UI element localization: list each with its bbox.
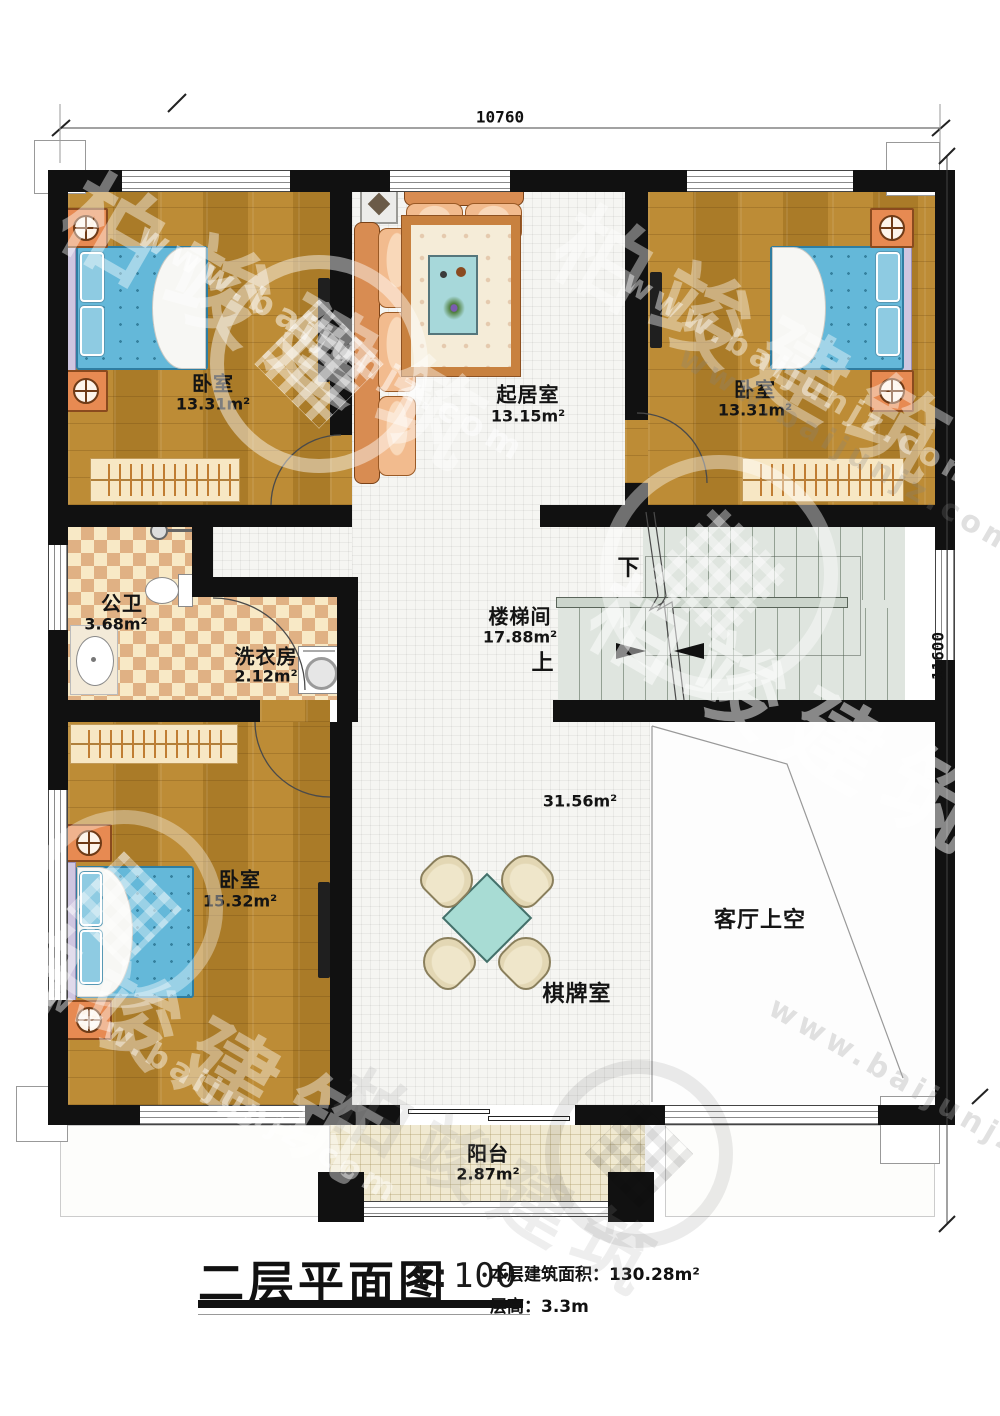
window xyxy=(390,170,510,192)
sofa-back xyxy=(354,222,380,484)
wall-segment xyxy=(290,170,390,192)
floor-plan-page: 卧室 13.31m² 起居室 13.15m² 卧室 13.31m² 公卫 3.6… xyxy=(0,0,1000,1416)
room-label-bathroom: 公卫 xyxy=(101,588,143,617)
pillow xyxy=(876,252,900,302)
wardrobe xyxy=(742,458,904,502)
nightstand xyxy=(870,370,914,412)
sofa-cushion xyxy=(378,396,416,476)
floor-height-label: 层高： xyxy=(490,1297,541,1317)
room-label-bedroom-sw: 卧室 xyxy=(219,864,261,893)
wall-segment xyxy=(935,170,955,550)
bed-blanket xyxy=(152,247,206,369)
nightstand xyxy=(870,208,914,248)
nightstand xyxy=(64,208,108,248)
floor-area-label: 本层建筑面积： xyxy=(490,1265,609,1285)
dimension-tick xyxy=(972,1089,988,1104)
dimension-label-right: 11600 xyxy=(929,632,948,680)
room-area-stairwell: 17.88m² xyxy=(483,628,557,647)
pillow xyxy=(80,872,102,926)
wall-segment xyxy=(625,192,648,420)
window xyxy=(140,1105,305,1125)
wall-segment xyxy=(540,505,935,527)
dimension-label-top: 10760 xyxy=(476,108,524,127)
wardrobe xyxy=(90,458,240,502)
window xyxy=(687,170,853,192)
door-opening xyxy=(260,700,330,722)
door-opening xyxy=(330,435,352,505)
window xyxy=(122,170,290,192)
room-area-bathroom: 3.68m² xyxy=(84,615,147,634)
washing-machine xyxy=(298,646,338,694)
wall-segment xyxy=(48,170,68,545)
room-area-laundry: 2.12m² xyxy=(234,667,297,686)
balcony-sliding-door xyxy=(400,1105,575,1125)
pillow xyxy=(80,252,104,302)
floor-area-row: 本层建筑面积：130.28m² xyxy=(490,1260,700,1285)
wall-segment xyxy=(48,700,260,722)
lamp-icon xyxy=(879,215,905,241)
wall-segment xyxy=(192,527,213,597)
room-label-stairwell: 楼梯间 xyxy=(489,601,552,630)
table-decor xyxy=(456,267,466,277)
lamp-icon xyxy=(73,378,99,404)
hangers-icon xyxy=(99,464,231,496)
washer-drum xyxy=(305,657,338,690)
window xyxy=(48,545,68,630)
wall-segment xyxy=(305,1105,400,1125)
wall-segment xyxy=(553,700,935,722)
title-underline-thin xyxy=(198,1314,530,1315)
wall-segment xyxy=(330,192,352,435)
roof-outline-left xyxy=(60,1125,330,1217)
door-opening xyxy=(625,420,648,483)
stair-handrail xyxy=(556,597,848,608)
hangers-icon xyxy=(79,730,229,758)
floor-height-value: 3.3m xyxy=(541,1297,589,1317)
room-area-bedroom-sw: 15.32m² xyxy=(203,892,277,911)
sink-counter xyxy=(70,625,118,695)
hangers-icon xyxy=(751,464,895,496)
room-label-bedroom-nw: 卧室 xyxy=(192,368,234,397)
room-label-laundry: 洗衣房 xyxy=(235,641,298,670)
wall-segment xyxy=(878,1105,955,1125)
room-area-living: 13.15m² xyxy=(491,407,565,426)
nightstand xyxy=(66,1000,112,1040)
floor-lamp-shade xyxy=(368,193,391,216)
table-decor xyxy=(440,271,447,278)
room-label-bedroom-ne: 卧室 xyxy=(734,374,776,403)
lamp-icon xyxy=(879,378,905,404)
balcony-post xyxy=(318,1172,364,1222)
nightstand xyxy=(66,824,112,862)
tv xyxy=(650,272,662,348)
dimension-tick xyxy=(168,94,186,112)
lamp-icon xyxy=(76,830,102,856)
room-label-living: 起居室 xyxy=(497,379,560,408)
room-label-living-void: 客厅上空 xyxy=(714,902,806,934)
nightstand xyxy=(64,370,108,412)
wall-segment xyxy=(510,170,687,192)
stair-down-label: 下 xyxy=(617,550,640,582)
room-label-balcony: 阳台 xyxy=(467,1138,509,1167)
pillow xyxy=(80,306,104,356)
stair-up-label: 上 xyxy=(531,645,554,677)
wall-segment xyxy=(48,505,352,527)
lamp-icon xyxy=(76,1007,102,1033)
title-underline xyxy=(198,1300,523,1308)
room-area-bedroom-ne: 13.31m² xyxy=(718,401,792,420)
wall-segment xyxy=(213,577,337,597)
wall-segment xyxy=(575,1105,665,1125)
table-flowers xyxy=(442,295,466,321)
shower-arm xyxy=(168,529,194,532)
floor-area-value: 130.28m² xyxy=(609,1265,700,1285)
balcony-railing xyxy=(328,1201,647,1217)
toilet-tank xyxy=(178,574,193,607)
room-area-game-room: 31.56m² xyxy=(543,792,617,811)
room-label-game-room: 棋牌室 xyxy=(542,976,611,1008)
sink-drain xyxy=(91,657,96,662)
room-area-bedroom-nw: 13.31m² xyxy=(176,395,250,414)
wardrobe xyxy=(70,724,238,764)
wall-segment xyxy=(935,660,955,1125)
sliding-door-leaf xyxy=(488,1116,570,1121)
room-area-balcony: 2.87m² xyxy=(456,1165,519,1184)
pillow xyxy=(80,930,102,984)
tv xyxy=(318,278,330,382)
washer-panel xyxy=(303,650,335,652)
wall-segment xyxy=(625,483,648,505)
tv xyxy=(318,882,330,978)
wall-segment xyxy=(330,722,352,1105)
balcony-post xyxy=(608,1172,654,1222)
wall-segment xyxy=(48,1105,140,1125)
pillow xyxy=(876,306,900,356)
window xyxy=(48,790,68,1000)
sliding-door-leaf xyxy=(408,1109,490,1114)
lamp-icon xyxy=(73,215,99,241)
floor-height-row: 层高：3.3m xyxy=(490,1292,589,1317)
coffee-table xyxy=(428,255,478,335)
window xyxy=(665,1105,878,1125)
wall-segment xyxy=(337,577,358,722)
toilet-bowl xyxy=(145,577,179,604)
